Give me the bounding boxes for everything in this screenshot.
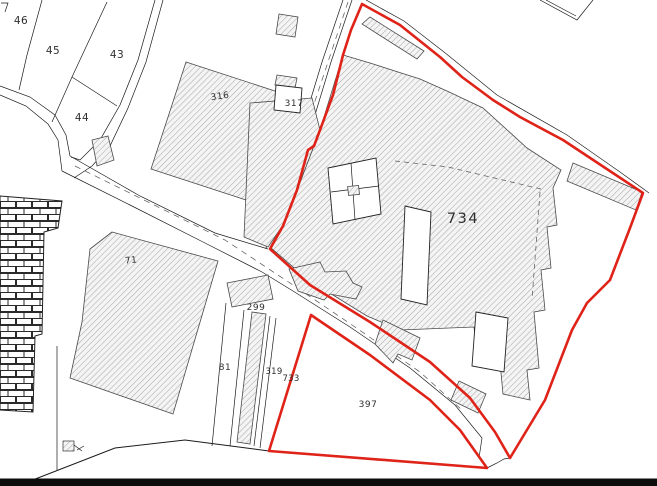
courtyard-inner-hatch	[348, 185, 360, 195]
parcel-label-45: 45	[46, 45, 60, 57]
parcel-label-733: 733	[282, 374, 299, 384]
parcel-label-319: 319	[265, 367, 282, 377]
parcel-label-46: 46	[14, 15, 28, 27]
parcel-label-43: 43	[110, 49, 124, 61]
parcel-label-397: 397	[359, 400, 378, 410]
footer-bar	[0, 479, 657, 486]
cadastral-map-viewport: 46 45 43 44 316 317 734 71 299 81 319 73…	[0, 0, 657, 486]
courtyard-notch	[472, 312, 508, 372]
cadastral-map: 46 45 43 44 316 317 734 71 299 81 319 73…	[0, 0, 657, 486]
parcel-label-299: 299	[247, 303, 266, 313]
building-top-square	[276, 14, 298, 37]
parcel-label-71: 71	[124, 255, 137, 266]
parcel-label-734: 734	[447, 211, 479, 227]
corridor-white	[401, 206, 431, 305]
parcel-label-317: 317	[285, 99, 304, 109]
parcel-label-81: 81	[219, 363, 231, 373]
parcel-label-44: 44	[75, 112, 89, 124]
